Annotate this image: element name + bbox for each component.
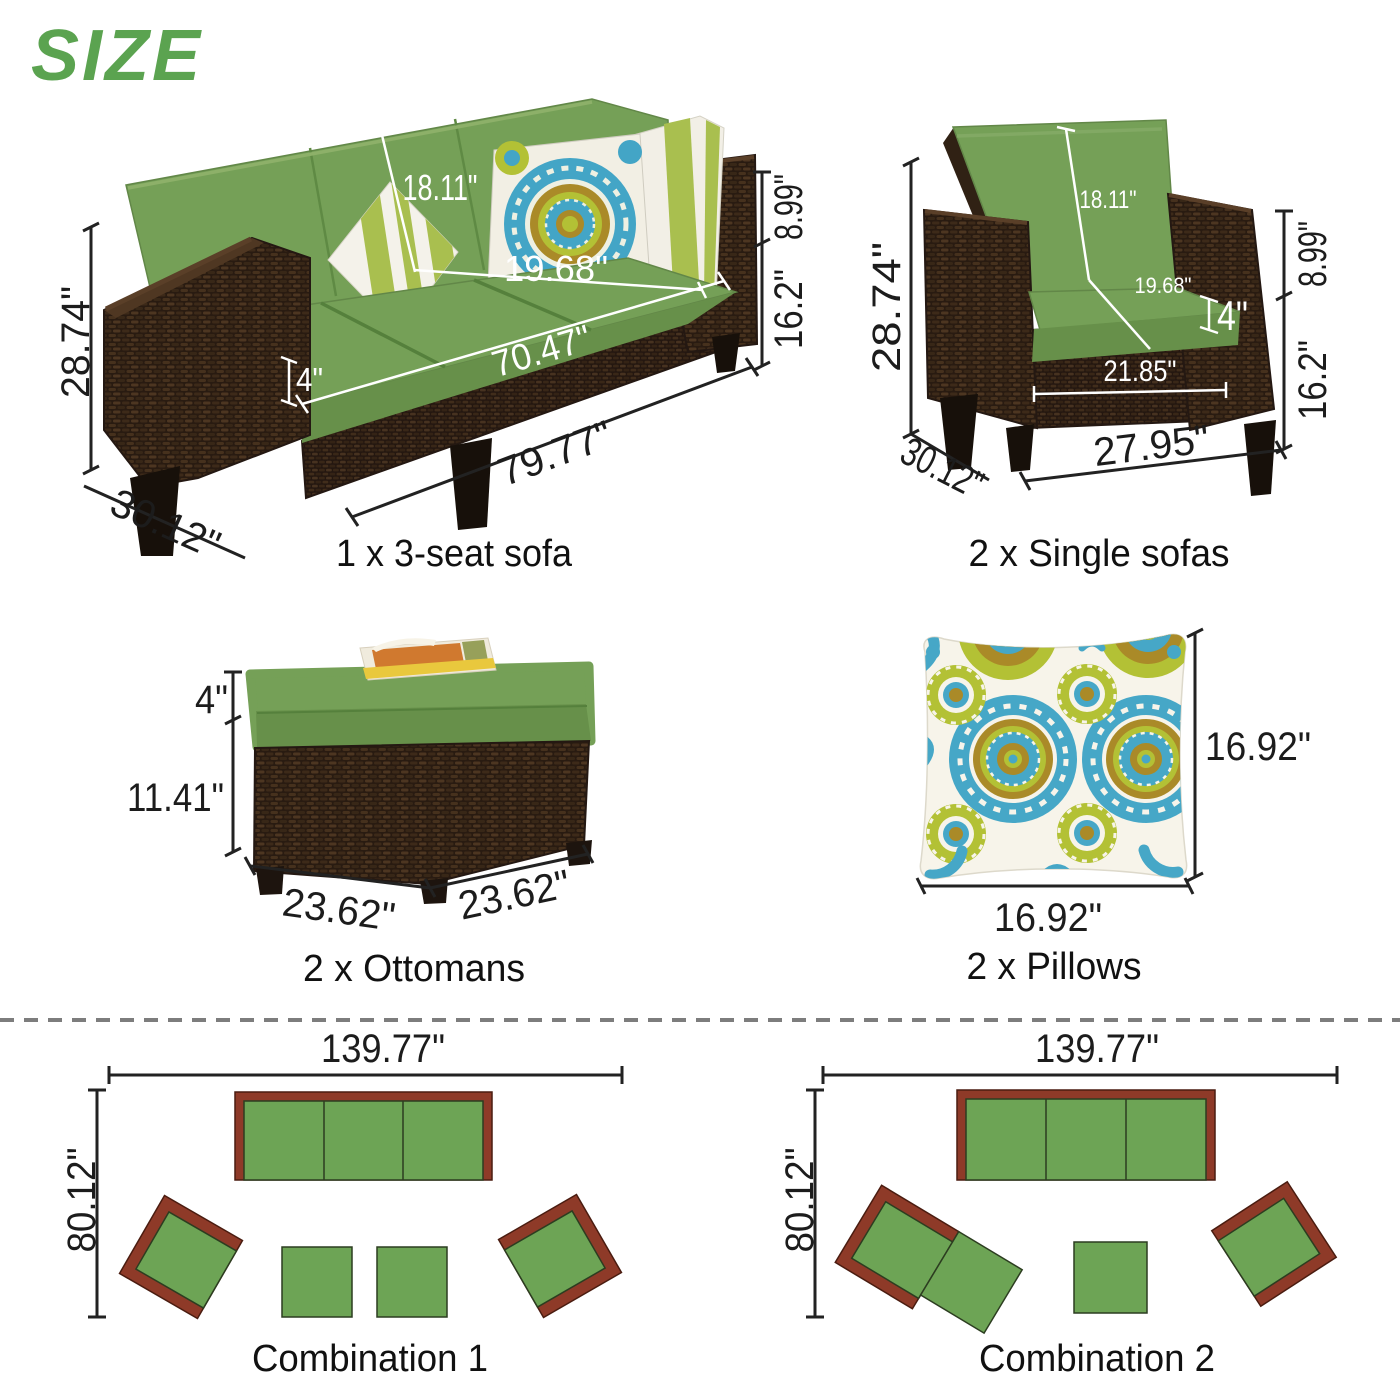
svg-text:139.77": 139.77" — [1035, 1027, 1159, 1071]
svg-text:2 x Pillows: 2 x Pillows — [967, 946, 1142, 988]
svg-text:28.74": 28.74" — [54, 286, 98, 398]
svg-text:16.2": 16.2" — [767, 269, 811, 349]
svg-text:19.68": 19.68" — [1135, 273, 1192, 298]
svg-text:2 x Single sofas: 2 x Single sofas — [969, 533, 1230, 575]
svg-text:SIZE: SIZE — [31, 16, 203, 96]
svg-text:4": 4" — [296, 361, 323, 398]
svg-text:8.99": 8.99" — [767, 174, 811, 240]
svg-text:139.77": 139.77" — [321, 1027, 445, 1071]
svg-text:11.41": 11.41" — [127, 776, 224, 820]
svg-text:2 x Ottomans: 2 x Ottomans — [303, 948, 525, 990]
svg-text:80.12": 80.12" — [778, 1148, 822, 1253]
svg-text:4": 4" — [1217, 292, 1248, 339]
svg-text:Combination 2: Combination 2 — [979, 1338, 1215, 1380]
svg-text:18.11": 18.11" — [1080, 186, 1137, 214]
svg-text:16.92": 16.92" — [994, 896, 1102, 940]
svg-text:1 x 3-seat sofa: 1 x 3-seat sofa — [336, 533, 573, 575]
svg-text:18.11": 18.11" — [403, 167, 478, 208]
svg-text:19.68": 19.68" — [504, 248, 608, 289]
svg-text:8.99": 8.99" — [1291, 221, 1335, 287]
svg-text:80.12": 80.12" — [60, 1148, 104, 1253]
svg-text:Combination 1: Combination 1 — [252, 1338, 488, 1380]
svg-text:4": 4" — [195, 678, 228, 722]
svg-text:16.92": 16.92" — [1205, 725, 1311, 769]
svg-text:28.74": 28.74" — [865, 242, 909, 372]
svg-text:21.85": 21.85" — [1104, 355, 1177, 388]
svg-text:16.2": 16.2" — [1291, 340, 1335, 420]
